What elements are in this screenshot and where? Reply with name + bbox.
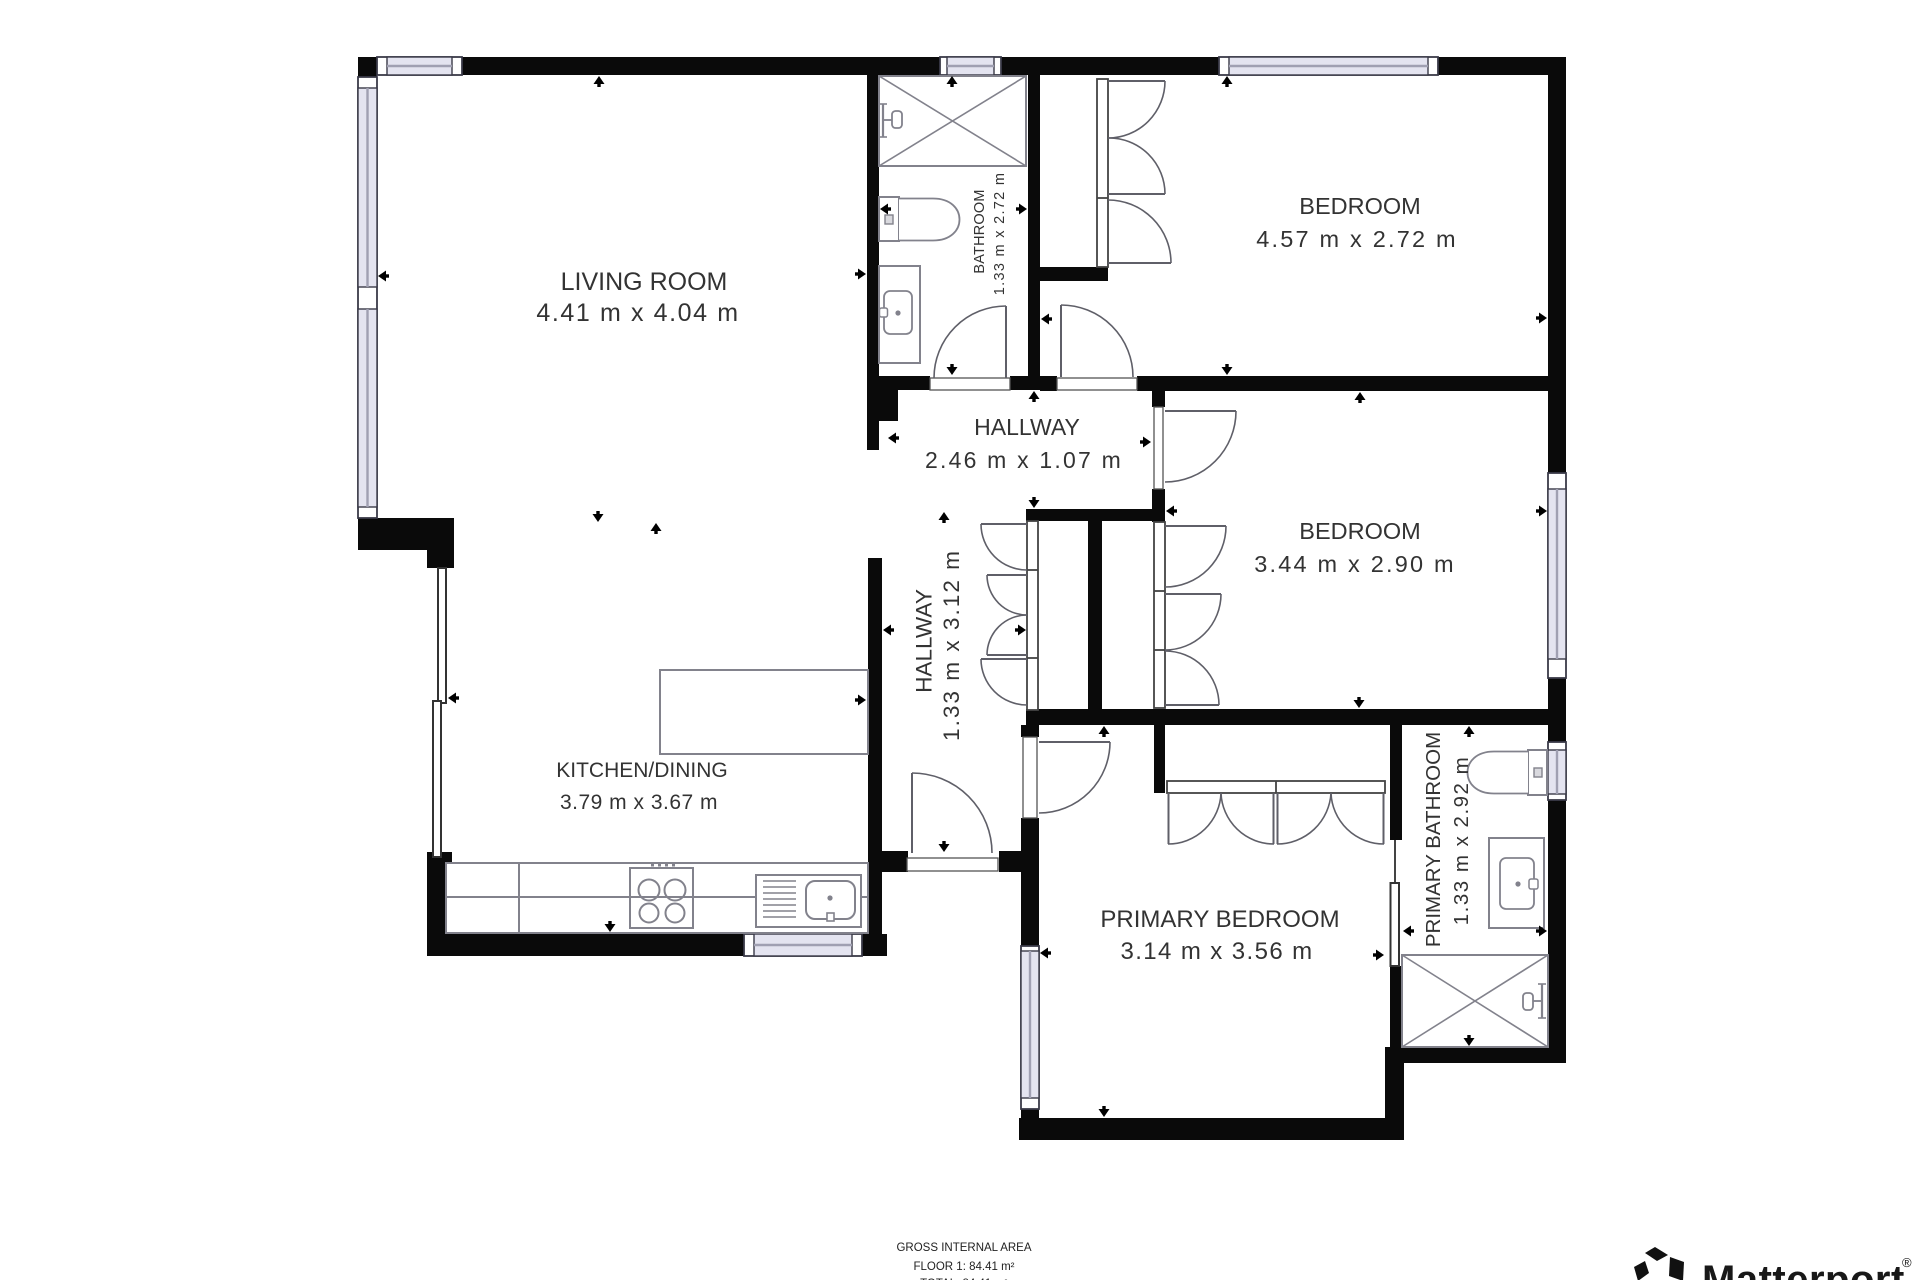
svg-text:3.44 m x 2.90 m: 3.44 m x 2.90 m [1254, 551, 1456, 577]
svg-text:1.33 m x 2.92 m: 1.33 m x 2.92 m [1450, 756, 1473, 925]
svg-text:BEDROOM: BEDROOM [1299, 518, 1420, 544]
svg-text:HALLWAY: HALLWAY [912, 589, 937, 693]
svg-text:2.46 m x 1.07 m: 2.46 m x 1.07 m [925, 447, 1123, 473]
svg-text:1.33 m x 3.12 m: 1.33 m x 3.12 m [939, 549, 964, 741]
svg-text:1.33 m x 2.72 m: 1.33 m x 2.72 m [992, 172, 1008, 295]
svg-text:FLOOR 1: 84.41 m²: FLOOR 1: 84.41 m² [914, 1261, 1015, 1273]
svg-text:®: ® [1902, 1255, 1912, 1270]
svg-text:BEDROOM: BEDROOM [1299, 193, 1420, 219]
svg-text:PRIMARY BATHROOM: PRIMARY BATHROOM [1422, 732, 1445, 947]
svg-text:4.41 m x 4.04 m: 4.41 m x 4.04 m [536, 299, 739, 327]
svg-text:GROSS INTERNAL AREA: GROSS INTERNAL AREA [896, 1242, 1031, 1254]
svg-text:4.57 m x 2.72 m: 4.57 m x 2.72 m [1256, 226, 1458, 252]
svg-text:3.14 m x 3.56 m: 3.14 m x 3.56 m [1120, 938, 1313, 965]
svg-text:Matterport: Matterport [1702, 1258, 1905, 1280]
svg-text:HALLWAY: HALLWAY [974, 414, 1080, 440]
svg-text:LIVING ROOM: LIVING ROOM [561, 268, 728, 296]
svg-text:PRIMARY BEDROOM: PRIMARY BEDROOM [1100, 906, 1339, 933]
svg-text:KITCHEN/DINING: KITCHEN/DINING [556, 759, 728, 782]
svg-text:BATHROOM: BATHROOM [972, 189, 988, 273]
svg-text:3.79 m x 3.67 m: 3.79 m x 3.67 m [560, 791, 718, 814]
